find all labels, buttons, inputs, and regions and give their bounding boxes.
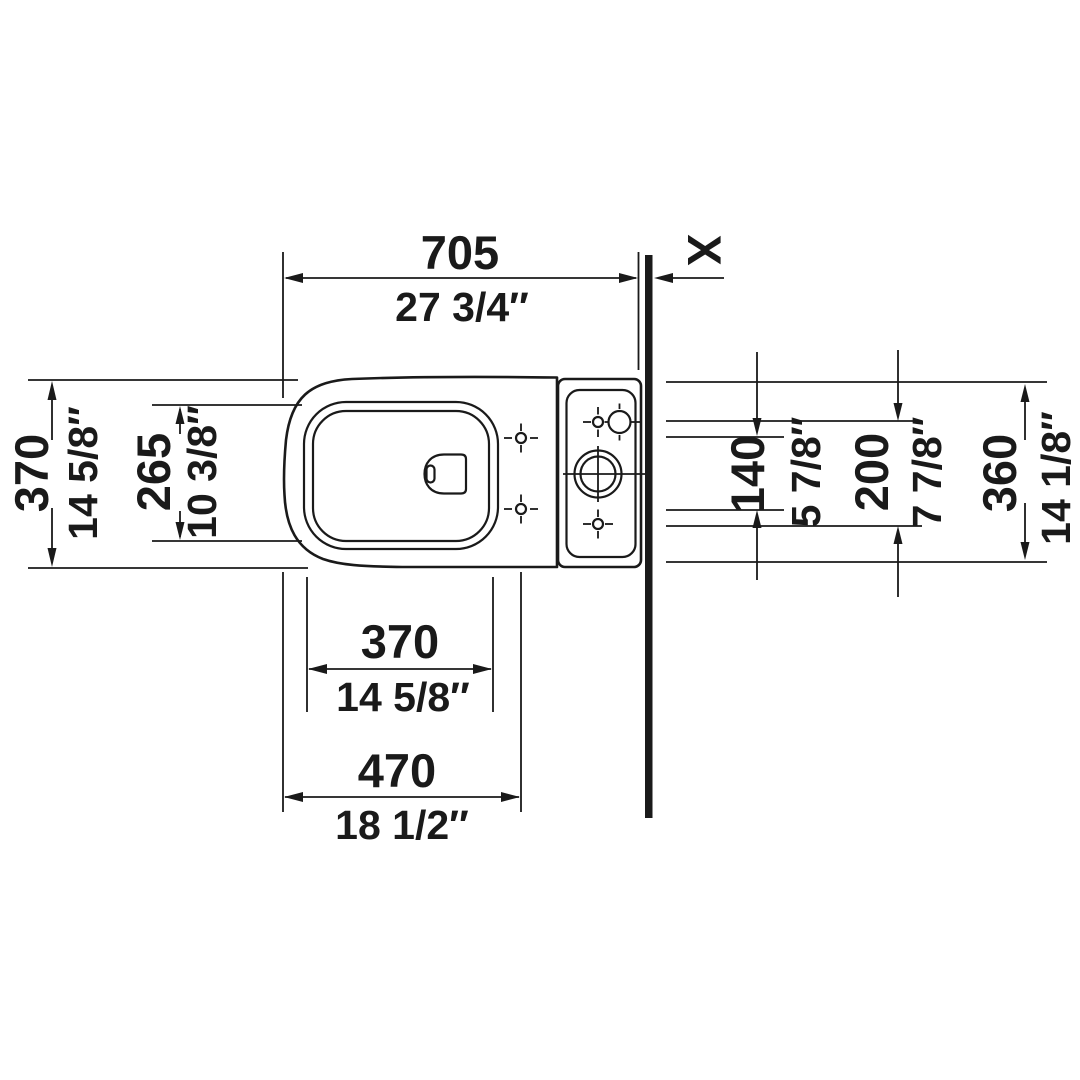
dimension-front-width-370: 370 14 5/8″ [307,577,493,720]
bowl-outline [284,377,557,567]
trap-detail [425,455,467,494]
seat-opening-mm-label: 265 [127,433,180,511]
dimension-depth-705: 705 27 3/4″ [283,226,638,398]
trap-notch [427,466,435,483]
seat-opening-inch-label: 10 3/8″ [179,405,225,539]
tank-outline [558,379,641,567]
seat-holes-inch-label: 5 7/8″ [783,417,829,528]
tank-width-inch-label: 14 1/8″ [1033,411,1079,545]
drawing-canvas: 705 27 3/4″ X 370 14 5/8″ 265 10 3/8″ [0,0,1080,1080]
tank-holes-mm-label: 200 [845,433,898,511]
dimension-tank-width-360: 360 14 1/8″ [973,384,1079,560]
depth-inch-label: 27 3/4″ [395,284,529,330]
dimension-drawing: 705 27 3/4″ X 370 14 5/8″ 265 10 3/8″ [0,0,1080,1080]
seat-opening [313,411,489,541]
tank-width-mm-label: 360 [973,434,1026,512]
dimension-seat-holes-140: 140 5 7/8″ [721,352,829,580]
seat-holes-mm-label: 140 [721,435,774,513]
overall-width-mm-label: 370 [5,434,58,512]
base-width-inch-label: 18 1/2″ [335,802,469,848]
base-width-mm-label: 470 [358,744,436,797]
seat-ring-outer [304,402,498,549]
overall-width-inch-label: 14 5/8″ [60,406,106,540]
seat-fixing-hole-top [504,424,538,453]
front-width-inch-label: 14 5/8″ [336,674,470,720]
wall-line [645,255,653,818]
tank-hole-top-small [583,407,609,437]
front-width-mm-label: 370 [361,615,439,668]
dimension-tank-holes-200: 200 7 7/8″ [845,350,950,597]
tank-hole-bottom-small [583,510,613,539]
toilet-body [284,377,648,567]
tank-holes-inch-label: 7 7/8″ [904,417,950,528]
depth-mm-label: 705 [421,226,499,279]
dimension-wall-gap-x: X [654,234,731,283]
dimension-seat-opening-265: 265 10 3/8″ [127,405,302,541]
wall-gap-label: X [678,234,731,265]
seat-fixing-hole-bottom [504,495,538,524]
